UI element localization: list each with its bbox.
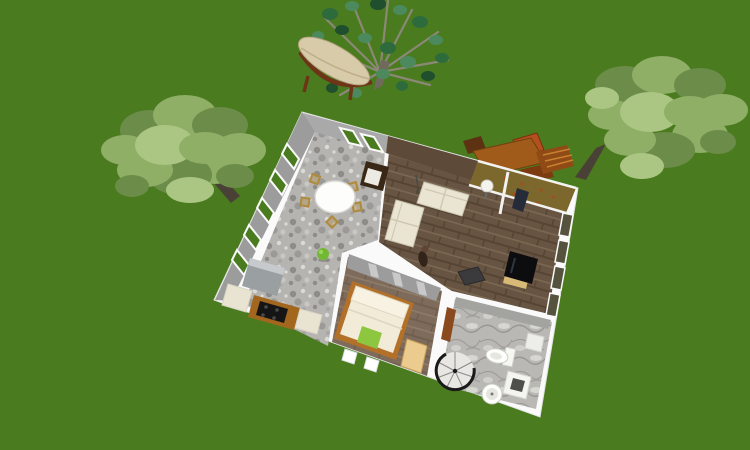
3d-viewport[interactable]	[0, 0, 750, 450]
desk-lamp	[481, 180, 493, 192]
spiral-staircase	[436, 352, 474, 390]
scene-3d-view	[0, 0, 750, 450]
dining-chair	[300, 197, 309, 206]
wall-shelf	[525, 333, 544, 352]
pedestal-sink	[482, 384, 502, 404]
dining-chair	[310, 174, 320, 184]
round-dining-table	[315, 181, 355, 213]
